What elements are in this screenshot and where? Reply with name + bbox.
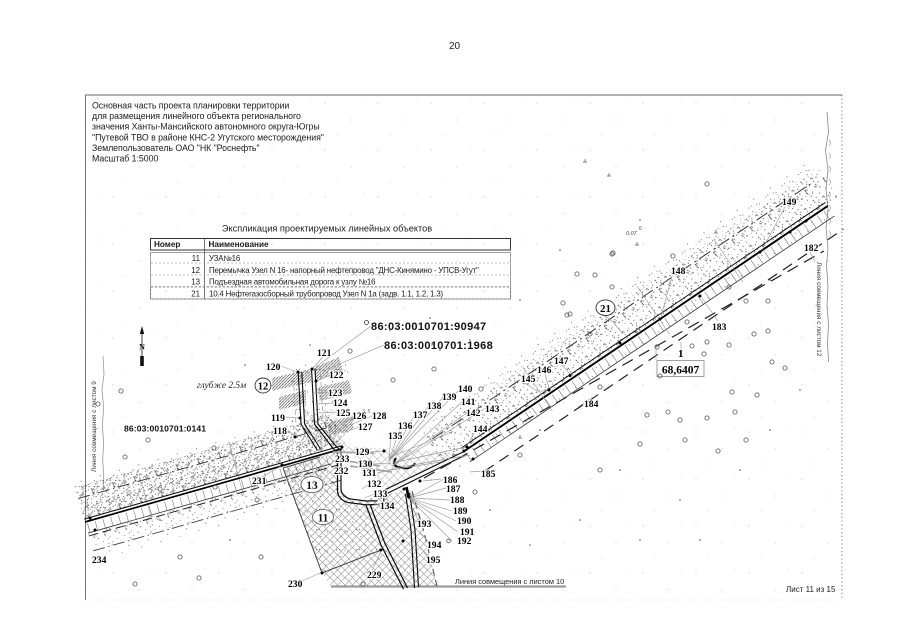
- svg-text:138: 138: [427, 401, 442, 412]
- svg-text:Линия совмещения с листом 10: Линия совмещения с листом 10: [455, 577, 564, 586]
- svg-text:146: 146: [537, 365, 552, 376]
- svg-text:Номер: Номер: [154, 240, 180, 249]
- svg-text:137: 137: [413, 410, 428, 421]
- svg-text:140: 140: [458, 384, 473, 395]
- svg-text:121: 121: [317, 348, 332, 359]
- svg-text:144: 144: [473, 424, 488, 435]
- svg-text:Экспликация проектируемых лине: Экспликация проектируемых линейных объек…: [222, 224, 432, 234]
- svg-text:127: 127: [358, 422, 373, 433]
- svg-text:234: 234: [92, 555, 107, 566]
- svg-text:147: 147: [554, 356, 569, 367]
- svg-text:184: 184: [584, 399, 599, 410]
- svg-text:122: 122: [329, 370, 344, 381]
- svg-text:86:03:0010701:1968: 86:03:0010701:1968: [384, 340, 493, 352]
- svg-text:120: 120: [266, 362, 281, 373]
- svg-text:229: 229: [367, 570, 382, 581]
- svg-text:6: 6: [639, 226, 642, 232]
- svg-text:Подъездная автомобильная дорог: Подъездная автомобильная дорога к узлу №…: [209, 278, 376, 287]
- svg-text:128: 128: [372, 411, 387, 422]
- svg-text:136: 136: [398, 421, 413, 432]
- svg-text:"Путевой ТВО в районе КНС-2 Уг: "Путевой ТВО в районе КНС-2 Угутского ме…: [92, 132, 324, 142]
- svg-text:231: 231: [252, 476, 267, 487]
- svg-text:для размещения линейного объек: для размещения линейного объекта региона…: [92, 111, 301, 121]
- svg-text:13: 13: [306, 480, 318, 492]
- svg-text:Линия совмещения с листом 9: Линия совмещения с листом 9: [91, 381, 98, 472]
- svg-text:142: 142: [466, 408, 481, 419]
- svg-text:149: 149: [782, 197, 797, 208]
- svg-text:183: 183: [712, 322, 727, 333]
- svg-text:11: 11: [192, 254, 200, 263]
- svg-text:Перемычка Узел N 16- напорный: Перемычка Узел N 16- напорный нефтепрово…: [209, 266, 479, 275]
- svg-text:Основная часть проекта планиро: Основная часть проекта планировки террит…: [92, 101, 289, 111]
- svg-text:11: 11: [318, 513, 329, 525]
- svg-text:значения Ханты-Мансийского авт: значения Ханты-Мансийского автономного о…: [92, 122, 320, 132]
- svg-text:185: 185: [481, 469, 496, 480]
- svg-text:0.07: 0.07: [626, 231, 638, 237]
- svg-text:21: 21: [600, 303, 611, 315]
- svg-text:21: 21: [191, 290, 200, 299]
- svg-text:10.4 Нефтегазосборный трубопро: 10.4 Нефтегазосборный трубопровод Узел N…: [209, 290, 444, 299]
- svg-text:135: 135: [388, 431, 403, 442]
- svg-text:Линия совмещения с листом 12: Линия совмещения с листом 12: [815, 262, 822, 357]
- svg-text:143: 143: [485, 404, 500, 415]
- svg-text:Лист 11 из 15: Лист 11 из 15: [786, 585, 836, 594]
- svg-text:139: 139: [442, 392, 457, 403]
- svg-text:131: 131: [362, 468, 377, 479]
- svg-text:230: 230: [288, 579, 303, 590]
- svg-text:Землепользователь ОАО "НК "Рос: Землепользователь ОАО "НК "Роснефть": [92, 143, 260, 153]
- svg-text:Масштаб 1:5000: Масштаб 1:5000: [92, 154, 158, 164]
- svg-text:1: 1: [678, 348, 684, 360]
- svg-text:12: 12: [258, 382, 269, 393]
- svg-text:125: 125: [336, 408, 351, 419]
- svg-text:145: 145: [521, 374, 536, 385]
- svg-text:УЗА№16: УЗА№16: [209, 254, 241, 263]
- svg-text:134: 134: [380, 501, 395, 512]
- svg-text:148: 148: [671, 266, 686, 277]
- svg-text:188: 188: [450, 495, 465, 506]
- svg-text:Наименование: Наименование: [209, 240, 270, 249]
- svg-text:141: 141: [461, 397, 476, 408]
- svg-text:3. 5: 3. 5: [362, 409, 371, 415]
- svg-text:129: 129: [355, 447, 370, 458]
- svg-text:118: 118: [273, 426, 287, 437]
- svg-text:133: 133: [373, 489, 388, 500]
- svg-text:190: 190: [457, 516, 472, 527]
- svg-text:192: 192: [457, 536, 472, 547]
- svg-text:86:03:0010701:90947: 86:03:0010701:90947: [371, 321, 487, 333]
- svg-text:N: N: [139, 343, 145, 352]
- svg-text:232: 232: [334, 466, 349, 477]
- svg-text:68,6407: 68,6407: [662, 365, 700, 377]
- svg-text:13: 13: [191, 278, 200, 287]
- svg-text:119: 119: [271, 413, 285, 424]
- svg-text:12: 12: [191, 266, 200, 275]
- svg-text:182: 182: [804, 243, 819, 254]
- svg-text:194: 194: [427, 540, 442, 551]
- svg-text:20: 20: [449, 41, 461, 52]
- svg-text:86:03:0010701:0141: 86:03:0010701:0141: [124, 424, 206, 434]
- svg-text:193: 193: [417, 519, 432, 530]
- svg-text:233: 233: [335, 454, 350, 465]
- svg-text:глубже 2.5м: глубже 2.5м: [197, 380, 246, 391]
- svg-text:187: 187: [446, 484, 461, 495]
- svg-text:195: 195: [426, 555, 441, 566]
